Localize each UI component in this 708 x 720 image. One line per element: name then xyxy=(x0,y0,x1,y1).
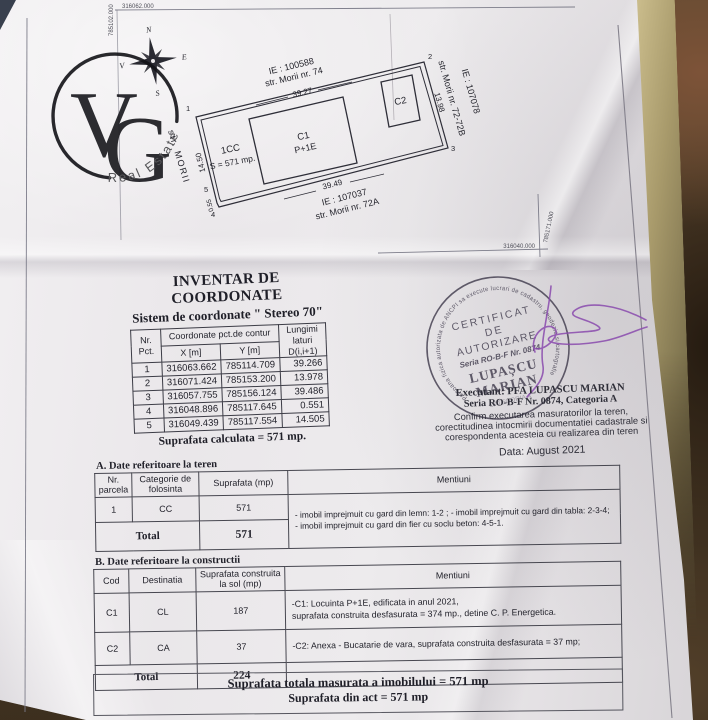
corner-1: 1 xyxy=(186,104,190,113)
cell-y: 785117.554 xyxy=(223,414,282,430)
th-suprafata-construita: Suprafata construita la sol (mp) xyxy=(196,566,285,591)
cell-x: 316049.439 xyxy=(164,416,223,432)
compass-east-label: E xyxy=(180,52,187,62)
land-table: Nr. parcela Categorie de folosinta Supra… xyxy=(94,465,621,552)
certification-block: Executant: PFA LUPASCU MARIAN Seria RO-B… xyxy=(428,381,654,461)
cell-nr: 1 xyxy=(132,363,162,378)
grid-y-bottomright: 785171.000 xyxy=(543,211,556,244)
cell-nr: 4 xyxy=(133,404,163,419)
building-c1-regime: P+1E xyxy=(293,141,317,155)
td-destinatia: CA xyxy=(130,631,198,665)
parcel-area-label: S = 571 mp. xyxy=(209,153,256,172)
th-nr-parcela: Nr. parcela xyxy=(95,473,132,497)
td-total-label: Total xyxy=(95,521,199,552)
total-area-box: Suprafata totala masurata a imobilului =… xyxy=(93,668,623,716)
compass-north-label: N xyxy=(144,25,152,35)
td-suprafata: 571 xyxy=(199,494,288,520)
th-destinatia: Destinatia xyxy=(129,568,196,593)
cell-nr: 3 xyxy=(133,390,163,405)
coordinate-table: Nr. Pct. Coordonate pct.de contur Lungim… xyxy=(130,322,330,434)
dim-top-label: 39.27 xyxy=(292,86,314,100)
corner-2: 2 xyxy=(428,52,432,61)
compass-south-label: S xyxy=(155,88,160,97)
photographed-cadastral-document: 316062.000 785102.000 316040.000 785171.… xyxy=(0,0,708,720)
vg-real-estate-logo: V G Real Estate xyxy=(53,54,182,202)
th-categorie: Categorie de folosinta xyxy=(132,472,199,497)
cell-nr: 2 xyxy=(132,376,162,391)
coord-header-d: Lungimi laturi D(i,i+1) xyxy=(278,323,326,358)
grid-x-topleft: 316062.000 xyxy=(122,4,154,10)
td-mentiuni: - imobil imprejmuit cu gard din lemn: 1-… xyxy=(288,489,621,548)
plan-annotations: IE : 100588 str. Morii nr. 74 39.27 str.… xyxy=(166,52,482,221)
grid-x-bottomright: 316040.000 xyxy=(503,244,535,250)
corner-5: 5 xyxy=(204,185,208,194)
td-suprafata: 37 xyxy=(197,629,287,663)
th-suprafata: Suprafata (mp) xyxy=(199,470,288,495)
td-total-value: 571 xyxy=(199,519,288,549)
corner-4: 4 xyxy=(211,210,215,219)
coord-header-nr: Nr. Pct. xyxy=(131,329,162,364)
td-mentiuni: -C2: Anexa - Bucatarie de vara, suprafat… xyxy=(286,624,622,662)
building-c2-label: C2 xyxy=(394,95,408,108)
dim-right-label: 13.98 xyxy=(432,91,446,113)
building-c1-label: C1 xyxy=(296,130,310,143)
parcel-label: 1CC xyxy=(220,142,241,156)
compass-west-label: V xyxy=(119,61,126,71)
td-suprafata: 187 xyxy=(196,590,286,630)
th-cod: Cod xyxy=(94,569,129,593)
neighbor-right-ie: IE : 107078 xyxy=(460,68,482,115)
grid-y-topleft: 785102.000 xyxy=(109,4,115,36)
td-nr: 1 xyxy=(95,497,132,523)
td-cod: C2 xyxy=(95,632,131,666)
land-data-section: A. Date referitoare la teren Nr. parcela… xyxy=(94,453,621,552)
handwritten-signature xyxy=(527,286,647,397)
coordinate-inventory-section: INVENTAR DE COORDONATE Sistem de coordon… xyxy=(124,268,335,449)
cell-nr: 5 xyxy=(134,418,164,433)
td-destinatia: CL xyxy=(129,592,197,632)
td-mentiuni: -C1: Locuinta P+1E, edificata in anul 20… xyxy=(285,585,622,629)
corner-3: 3 xyxy=(451,144,455,153)
cell-d: 14.505 xyxy=(282,412,330,428)
td-categorie: CC xyxy=(132,496,199,522)
td-cod: C1 xyxy=(94,593,130,633)
